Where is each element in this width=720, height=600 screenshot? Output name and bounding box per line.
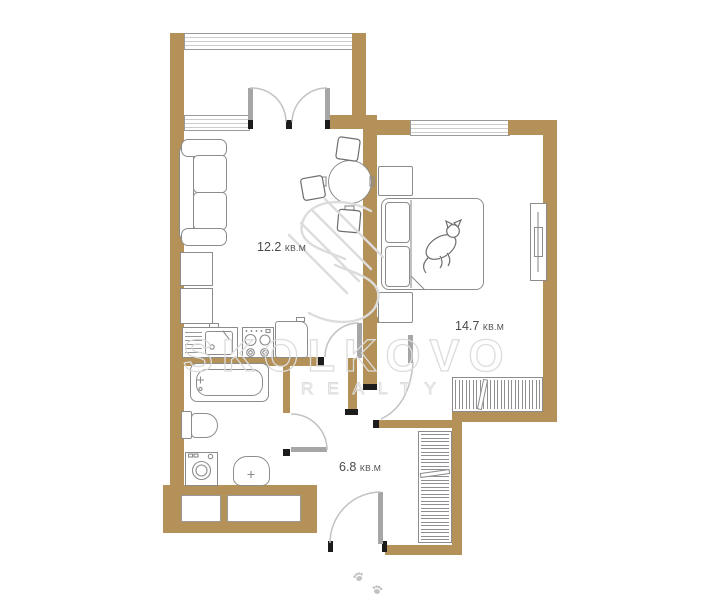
wall-niche-2 bbox=[227, 495, 301, 522]
bedroom-top-wall-left bbox=[363, 120, 410, 135]
nightstand-2 bbox=[378, 292, 413, 323]
wardrobe-hallway bbox=[418, 431, 452, 543]
floor-plan-canvas: SKOLKOVO REALTY 12.2 КВ.М 14.7 КВ.М 6.8 … bbox=[0, 0, 720, 600]
balcony-wall-right bbox=[352, 33, 366, 125]
table-tab-left bbox=[322, 177, 326, 186]
chair-bottom bbox=[337, 209, 361, 233]
wall-niche-1 bbox=[181, 495, 221, 522]
table-tab-top bbox=[345, 154, 354, 158]
room-area-value: 12.2 bbox=[257, 240, 281, 254]
balcony-door-jamb-right bbox=[325, 120, 330, 129]
balcony-door-swing-left bbox=[250, 88, 286, 122]
paw-print-icon bbox=[353, 571, 365, 582]
entrance-door-swing bbox=[330, 492, 381, 543]
living-balcony-window bbox=[184, 115, 250, 131]
table-tab-bottom bbox=[345, 206, 354, 210]
sofa-cushion-2 bbox=[193, 192, 227, 230]
bedroom-bottom-wall-right bbox=[452, 412, 557, 422]
balcony-door-jamb-center bbox=[286, 120, 292, 129]
washing-machine bbox=[185, 452, 218, 486]
sofa-back bbox=[179, 146, 194, 240]
room-area-unit: КВ.М bbox=[360, 463, 381, 473]
pillow-2 bbox=[385, 246, 410, 287]
wardrobe-bedroom bbox=[452, 377, 543, 412]
toilet-bowl bbox=[191, 413, 218, 438]
room-area-value: 14.7 bbox=[455, 319, 479, 333]
wardrobe-hallway-hangers bbox=[421, 434, 449, 540]
bathroom-door-swing bbox=[291, 414, 327, 450]
cabinet-1 bbox=[180, 252, 213, 286]
hall-partition-cap bbox=[345, 409, 358, 415]
entrance-door-jamb-left bbox=[328, 541, 333, 552]
tv-unit-inner bbox=[534, 227, 543, 257]
room-label-bedroom: 14.7 КВ.М bbox=[455, 319, 504, 333]
entrance-door-leaf bbox=[378, 492, 383, 544]
balcony-door-leaf-left bbox=[248, 88, 253, 120]
chair-top bbox=[336, 137, 361, 162]
kitchen-soap-dish bbox=[209, 323, 219, 328]
hall-wardrobe-side-wall bbox=[452, 422, 462, 555]
nightstand-1 bbox=[378, 166, 413, 196]
room-area-unit: КВ.М bbox=[285, 243, 306, 253]
sofa-armrest-bottom bbox=[181, 228, 227, 246]
dining-table bbox=[328, 160, 372, 204]
pillow-1 bbox=[385, 202, 410, 243]
room-label-hallway: 6.8 КВ.М bbox=[339, 460, 381, 474]
balcony-door-leaf-right bbox=[325, 88, 330, 120]
balcony-door-jamb-left bbox=[248, 120, 253, 129]
bathroom-door-leaf bbox=[291, 447, 327, 452]
fridge-handle bbox=[296, 317, 305, 322]
wardrobe-bedroom-hangers bbox=[455, 380, 540, 409]
balcony-top-window bbox=[184, 33, 354, 50]
sofa-cushion-1 bbox=[193, 155, 227, 193]
balcony-door-swing-right bbox=[292, 88, 327, 122]
watermark-brand: SKOLKOVO bbox=[183, 330, 513, 382]
bathroom-door-hinge-cap bbox=[283, 449, 290, 456]
room-area-unit: КВ.М bbox=[483, 322, 504, 332]
living-top-wall-right bbox=[330, 115, 363, 129]
room-area-value: 6.8 bbox=[339, 460, 356, 474]
cabinet-2 bbox=[180, 288, 213, 324]
entrance-bottom-wall bbox=[385, 545, 462, 555]
paw-print-icon bbox=[372, 585, 383, 595]
washbasin bbox=[233, 456, 270, 486]
bedroom-bottom-wall-cap bbox=[373, 420, 379, 428]
bedroom-bottom-wall-left bbox=[373, 420, 452, 428]
bedroom-window bbox=[410, 120, 510, 136]
watermark-subtitle: REALTY bbox=[301, 379, 450, 399]
chair-left bbox=[300, 175, 325, 200]
room-label-living-kitchen: 12.2 КВ.М bbox=[257, 240, 306, 254]
